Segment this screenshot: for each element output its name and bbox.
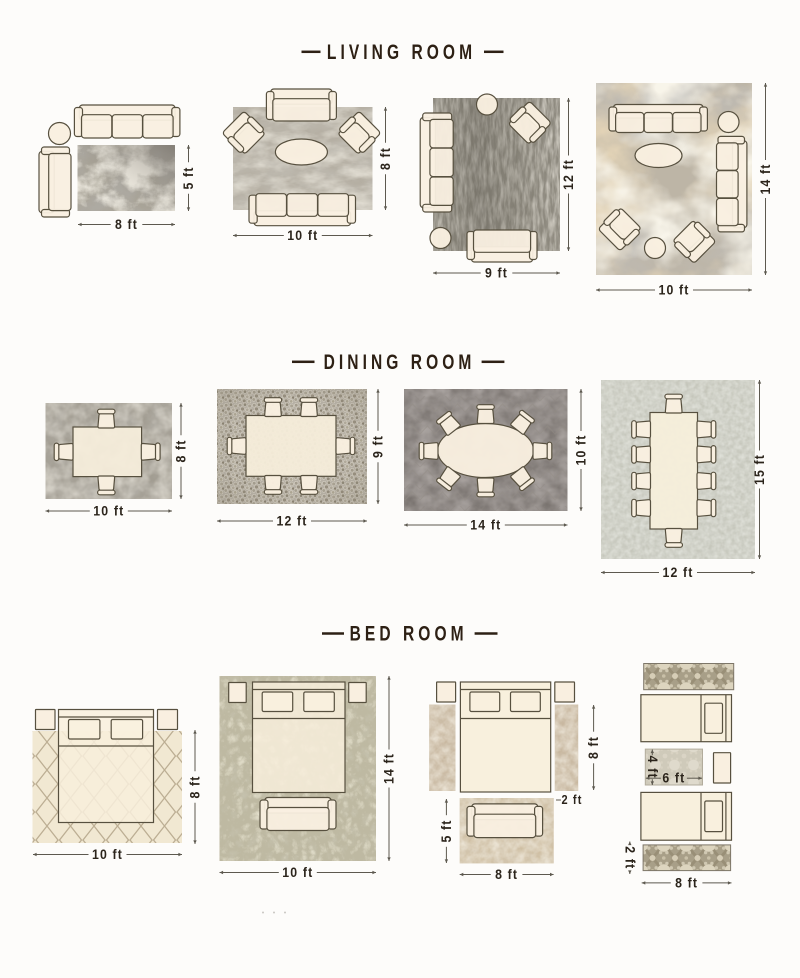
svg-text:10 ft: 10 ft [573, 434, 589, 465]
svg-text:14 ft: 14 ft [470, 517, 501, 533]
svg-text:BED ROOM: BED ROOM [350, 621, 468, 645]
svg-text:12 ft: 12 ft [560, 159, 576, 190]
svg-text:12 ft: 12 ft [662, 564, 693, 580]
svg-text:8 ft: 8 ft [115, 216, 138, 232]
svg-text:15 ft: 15 ft [751, 454, 767, 485]
svg-text:4 ft: 4 ft [645, 756, 661, 779]
svg-text:5 ft: 5 ft [438, 819, 454, 842]
svg-text:8 ft: 8 ft [173, 439, 189, 462]
svg-text:6 ft: 6 ft [662, 770, 685, 786]
svg-text:8 ft: 8 ft [585, 736, 601, 759]
svg-text:LIVING ROOM: LIVING ROOM [327, 40, 476, 64]
svg-text:10 ft: 10 ft [658, 282, 689, 298]
svg-text:DINING ROOM: DINING ROOM [324, 350, 476, 374]
svg-text:10 ft: 10 ft [282, 864, 313, 880]
svg-text:2 ft: 2 ft [561, 793, 582, 807]
svg-text:5 ft: 5 ft [180, 166, 196, 189]
svg-text:8 ft: 8 ft [495, 866, 518, 882]
svg-text:8 ft: 8 ft [377, 147, 393, 170]
svg-text:10 ft: 10 ft [93, 503, 124, 519]
svg-text:9 ft: 9 ft [370, 435, 386, 458]
svg-text:9 ft: 9 ft [485, 265, 508, 281]
svg-text:2 ft: 2 ft [622, 846, 638, 869]
svg-text:14 ft: 14 ft [757, 163, 773, 194]
svg-text:14 ft: 14 ft [381, 753, 397, 784]
svg-text:10 ft: 10 ft [92, 846, 123, 862]
svg-text:12 ft: 12 ft [276, 513, 307, 529]
svg-text:10 ft: 10 ft [287, 227, 318, 243]
svg-text:8 ft: 8 ft [675, 875, 698, 891]
svg-text:8 ft: 8 ft [187, 775, 203, 798]
